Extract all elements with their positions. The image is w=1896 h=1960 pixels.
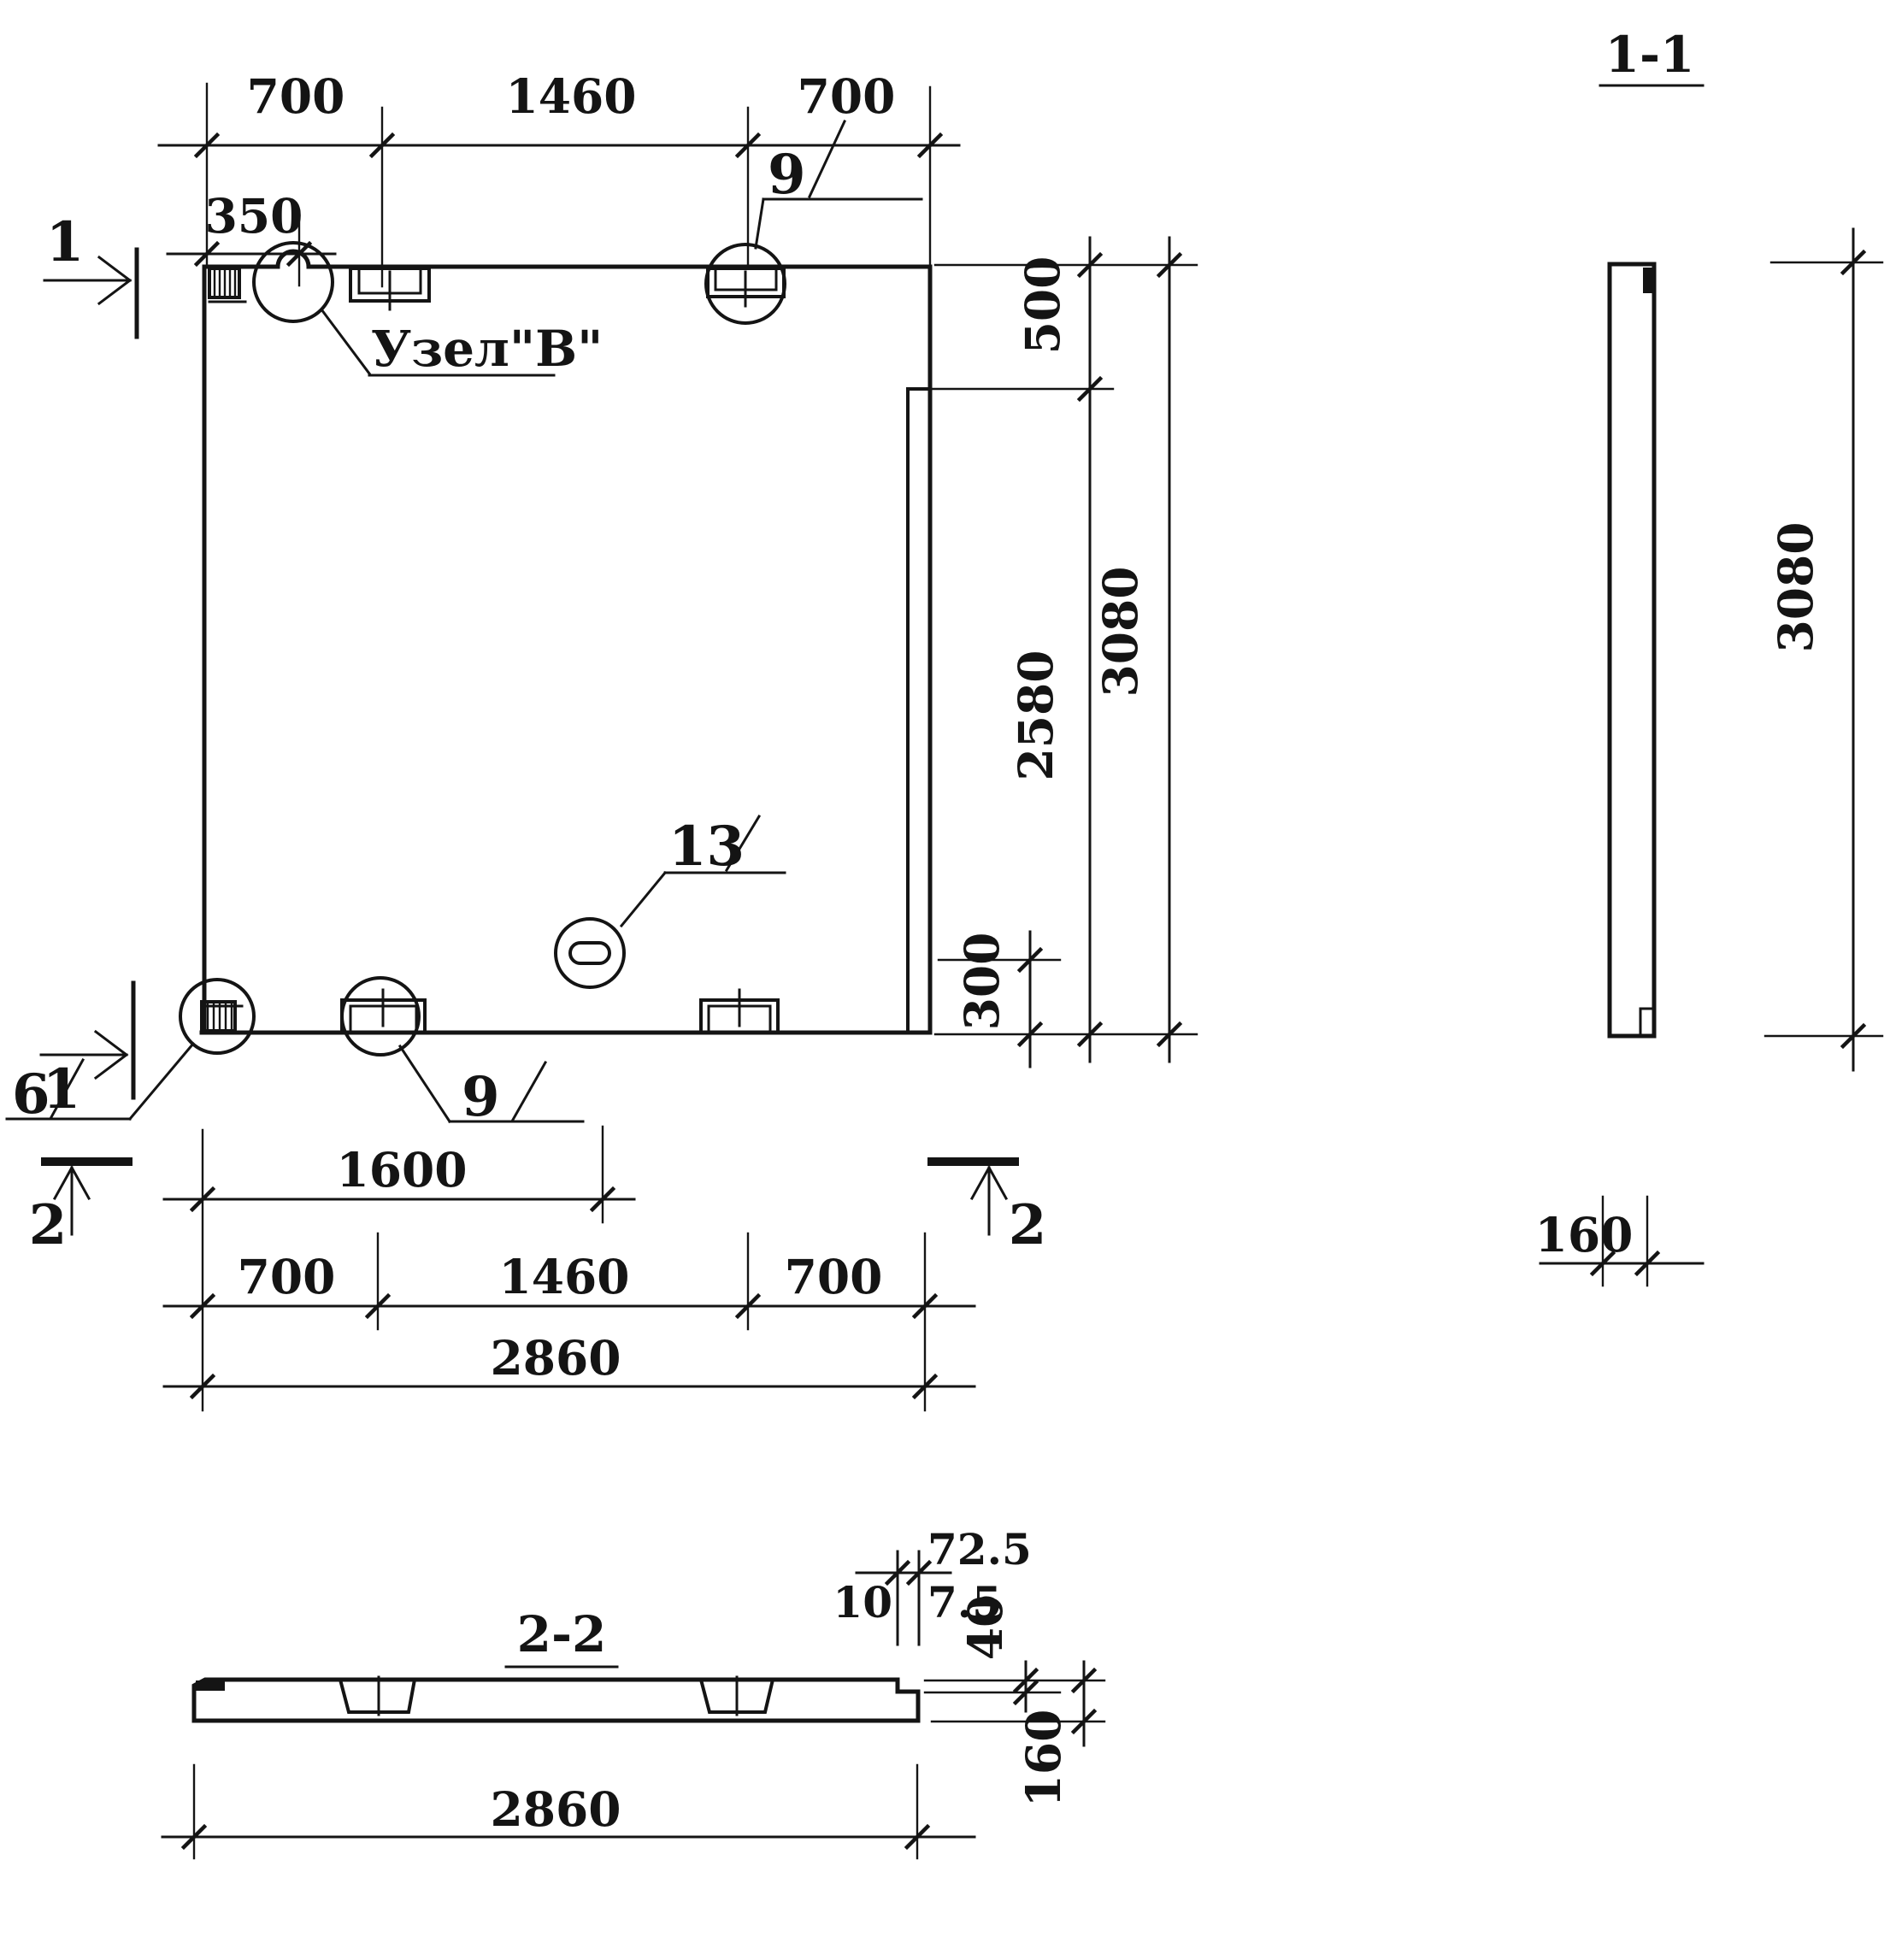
dim-bottom-700-right: 700 [785,1249,883,1304]
dim-right-500: 500 [1015,256,1070,355]
callout-slash [513,1062,545,1120]
callout-13: 13 [668,815,745,879]
marker-2-left-label: 2 [29,1193,68,1257]
section-2-2-title: 2-2 [517,1605,607,1663]
plan-slot-top-left [350,268,429,309]
dim-bottom-1600: 1600 [336,1142,467,1198]
dim-top-700-left: 700 [247,68,345,124]
section-1-1-top-rebate [1643,268,1653,293]
dim-top-1460: 1460 [505,68,636,124]
section-1-1 [1540,85,1882,1286]
dim-s22-72-5: 72.5 [927,1524,1032,1574]
dim-bottom-1460: 1460 [498,1249,629,1304]
dim-bottom-700-left: 700 [238,1249,336,1304]
dim-s22-10: 10 [833,1577,892,1627]
plan-slot-top-right [706,121,922,323]
section-1-1-title: 1-1 [1605,26,1695,84]
callout-9-top: 9 [768,143,806,207]
dim-right-3080: 3080 [1092,566,1148,697]
callout-node-b: Узел"В" [371,320,603,378]
marker-2-right-label: 2 [1009,1193,1047,1257]
plan-top-left-anchor [209,268,245,302]
marker-1-top-label: 1 [46,210,85,274]
callout-slash [810,121,845,197]
panel-drawing: 700 1460 700 350 500 2580 3080 300 1600 … [0,0,1896,1960]
dim-s11-160: 160 [1535,1207,1634,1263]
plan-slot-bottom-right [701,990,778,1033]
dim-s22-160: 160 [1016,1710,1071,1808]
dim-s11-3080: 3080 [1768,521,1823,652]
section-marker-2-right [932,1162,1015,1234]
dim-top-350: 350 [205,188,303,244]
technical-drawing-sheet: 700 1460 700 350 500 2580 3080 300 1600 … [0,0,1896,1960]
dim-s22-2860: 2860 [490,1781,621,1837]
dim-right-300: 300 [954,933,1010,1031]
section-2-2-left-seal [196,1680,225,1691]
dim-s22-40: 40 [957,1595,1013,1661]
dim-bottom-2860: 2860 [490,1330,621,1386]
dim-top-700-right: 700 [798,68,896,124]
dim-right-2580: 2580 [1008,650,1063,780]
marker-1-bottom-label: 1 [43,1057,81,1121]
callout-9-bottom: 9 [462,1065,500,1129]
